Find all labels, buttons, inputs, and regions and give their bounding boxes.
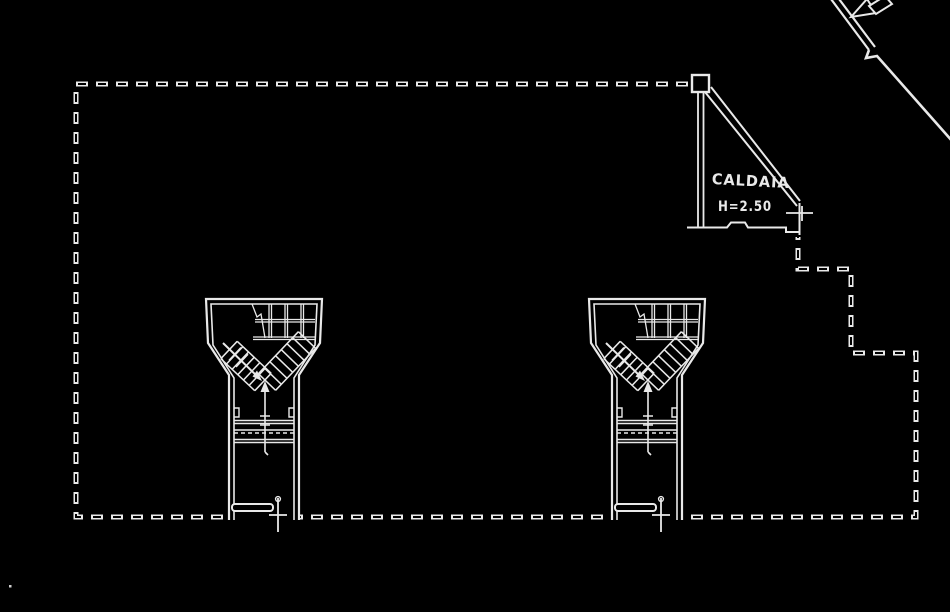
stairwell-left	[206, 299, 322, 532]
boiler-anchor-square	[692, 75, 709, 92]
direction-arrow-icon	[851, 0, 892, 17]
floor-plan-drawing: CALDAIA H=2.50	[0, 0, 950, 612]
ramp-single-line	[866, 50, 950, 142]
floor-plan-canvas: CALDAIA H=2.50	[0, 0, 950, 612]
boiler-left-wall	[698, 92, 704, 227]
boiler-enclosure: CALDAIA H=2.50	[687, 75, 813, 235]
stairwell-right	[589, 299, 705, 532]
site-boundary	[76, 84, 916, 517]
boundary-dash-core	[76, 84, 916, 517]
scan-artifact-dot	[9, 585, 12, 588]
boiler-height-label: H=2.50	[718, 199, 772, 215]
ramp-line	[828, 0, 950, 142]
boundary-dash-outer	[76, 84, 916, 517]
